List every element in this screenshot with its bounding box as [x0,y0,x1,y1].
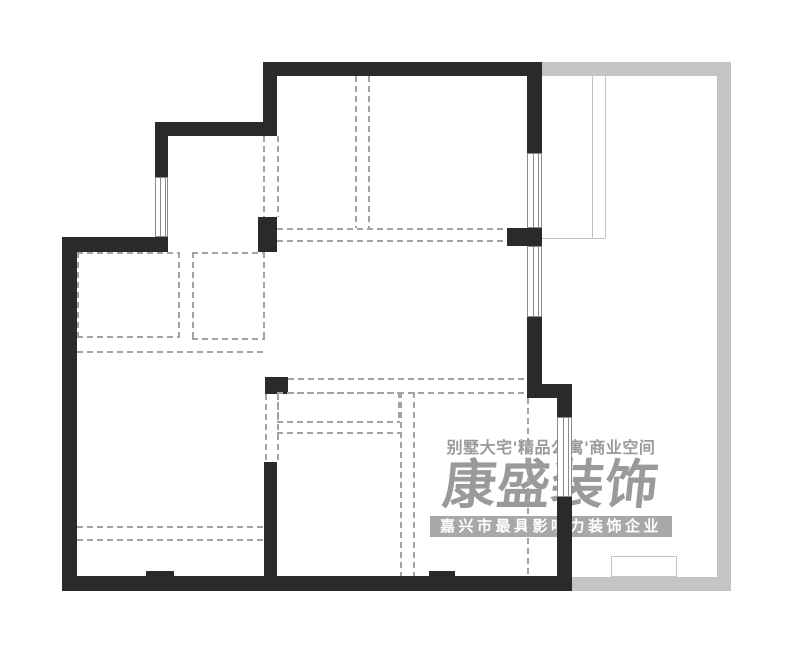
wall-segment [507,228,542,246]
dashed-line [192,252,194,340]
floor-plan-page: { "colors": { "wall": "#2a2a2a", "gray_w… [0,0,800,648]
thin-line [605,76,606,238]
dashed-line [77,336,180,338]
gray-wall-segment [542,62,731,76]
wall-segment [146,571,174,576]
dashed-line [192,338,265,340]
dashed-line [277,228,507,230]
dashed-line [277,421,400,423]
dashed-line [527,398,529,576]
wall-segment [62,237,77,591]
window-mullion-line [538,154,539,227]
thin-line [592,76,593,238]
wall-segment [557,497,572,591]
dashed-line [77,526,264,528]
window [527,153,542,228]
wall-segment [155,122,277,136]
wall-segment [62,576,572,591]
wall-segment [264,462,277,576]
window-mullion-line [563,418,564,496]
wall-segment [557,398,572,417]
window-mullion-line [568,418,569,496]
window-mullion-line [533,154,534,227]
dashed-line [288,392,527,394]
window-mullion-line [160,178,161,236]
thin-line [542,238,605,239]
wall-segment [263,62,277,122]
gray-wall-segment [717,62,731,591]
dashed-line [77,539,264,541]
window-mullion-line [533,247,534,316]
dashed-line [355,76,357,228]
dashed-line [277,394,279,462]
wall-segment [527,62,542,153]
dashed-line [288,378,527,380]
dashed-line [265,394,267,462]
window [527,246,542,317]
appliance-outline [611,556,677,577]
dashed-line [368,76,370,228]
wall-segment [258,217,277,252]
window-mullion-line [165,178,166,236]
wall-segment [527,384,572,398]
wall-segment [62,237,168,252]
window [155,177,168,237]
wall-segment [155,136,168,177]
window [557,417,572,497]
dashed-line [192,252,265,254]
dashed-line [277,136,279,217]
dashed-line [413,392,415,576]
floor-plan [0,0,800,648]
dashed-line [77,252,180,254]
dashed-line [277,432,400,434]
window-mullion-line [538,247,539,316]
dashed-line [77,351,265,353]
dashed-line [277,240,507,242]
wall-segment [527,317,542,384]
dashed-line [178,252,180,338]
gray-wall-segment [572,577,731,591]
dashed-line [263,252,265,340]
wall-segment [263,62,542,76]
wall-segment [429,571,455,576]
dashed-line [400,392,402,576]
dashed-line [263,136,265,217]
dashed-line [77,252,79,338]
